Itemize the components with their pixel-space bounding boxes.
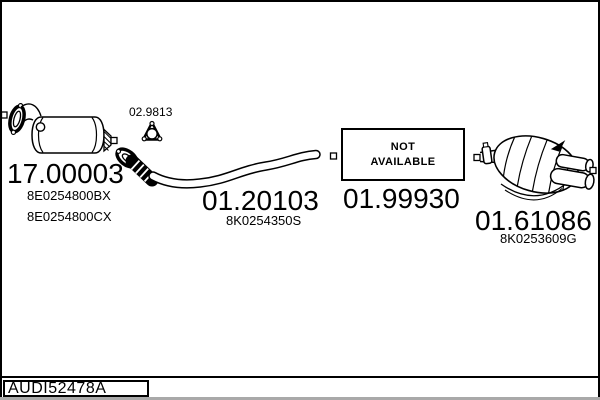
- mount-square-icon: [331, 153, 337, 159]
- catalytic-converter-drawing: [2, 102, 118, 153]
- triangular-gasket-icon: [142, 122, 162, 141]
- oe-ref-catalytic-converter-1: 8E0254800BX: [27, 188, 111, 203]
- frame-border-top: [0, 0, 600, 2]
- rear-silencer-drawing: [480, 127, 598, 203]
- frame-border-left: [0, 0, 2, 398]
- oe-ref-catalytic-converter-2: 8E0254800CX: [27, 209, 112, 224]
- mount-square-icon: [474, 155, 480, 161]
- mount-square-icon: [590, 168, 596, 174]
- footer-separator-line: [0, 376, 600, 378]
- outlet-square-icon: [111, 138, 117, 144]
- part-number-centre-section[interactable]: 01.99930: [343, 185, 460, 213]
- mount-square-icon: [2, 112, 8, 118]
- part-number-gasket[interactable]: 02.9813: [129, 105, 172, 119]
- part-number-catalytic-converter[interactable]: 17.00003: [7, 160, 124, 188]
- not-available-line2: AVAILABLE: [371, 155, 436, 170]
- catalog-diagram-page: 17.00003 8E0254800BX 8E0254800CX 02.9813…: [0, 0, 600, 400]
- oe-ref-front-pipe: 8K0254350S: [226, 213, 301, 228]
- oe-ref-rear-silencer: 8K0253609G: [500, 231, 577, 246]
- not-available-line1: NOT: [391, 140, 415, 155]
- part-number-front-pipe[interactable]: 01.20103: [202, 187, 319, 215]
- diagram-code: AUDI52478A: [8, 382, 106, 395]
- diagram-code-box: AUDI52478A: [3, 380, 149, 397]
- flexible-front-pipe-drawing: [113, 145, 337, 184]
- not-available-box: NOT AVAILABLE: [341, 128, 465, 181]
